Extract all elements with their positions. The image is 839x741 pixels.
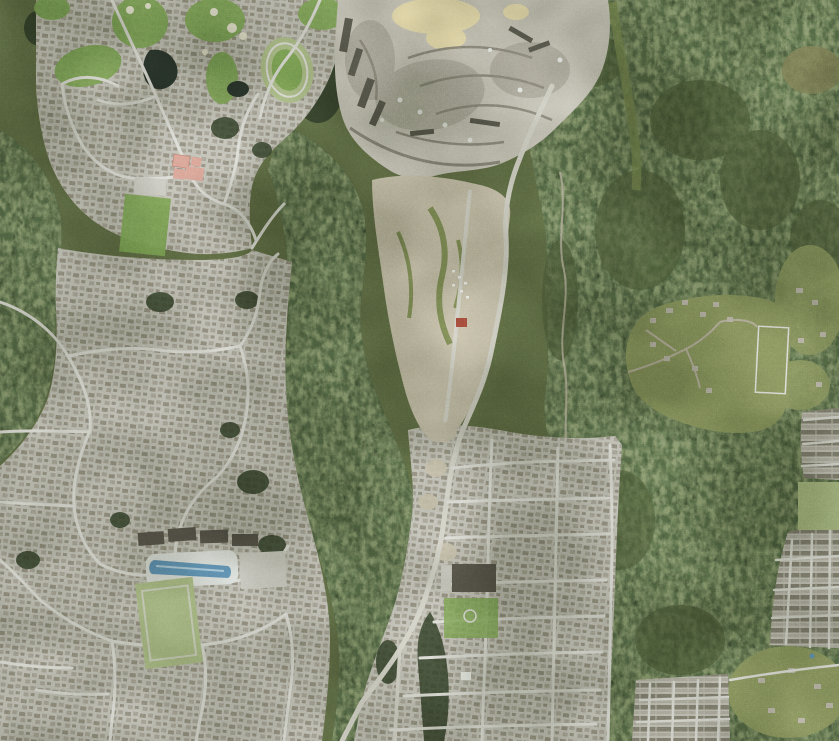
satellite-map-view[interactable]: Aerial satellite view: suburban neighbou… <box>0 0 839 741</box>
photo-grain-overlay <box>0 0 839 741</box>
satellite-map-canvas[interactable]: Aerial satellite view: suburban neighbou… <box>0 0 839 741</box>
